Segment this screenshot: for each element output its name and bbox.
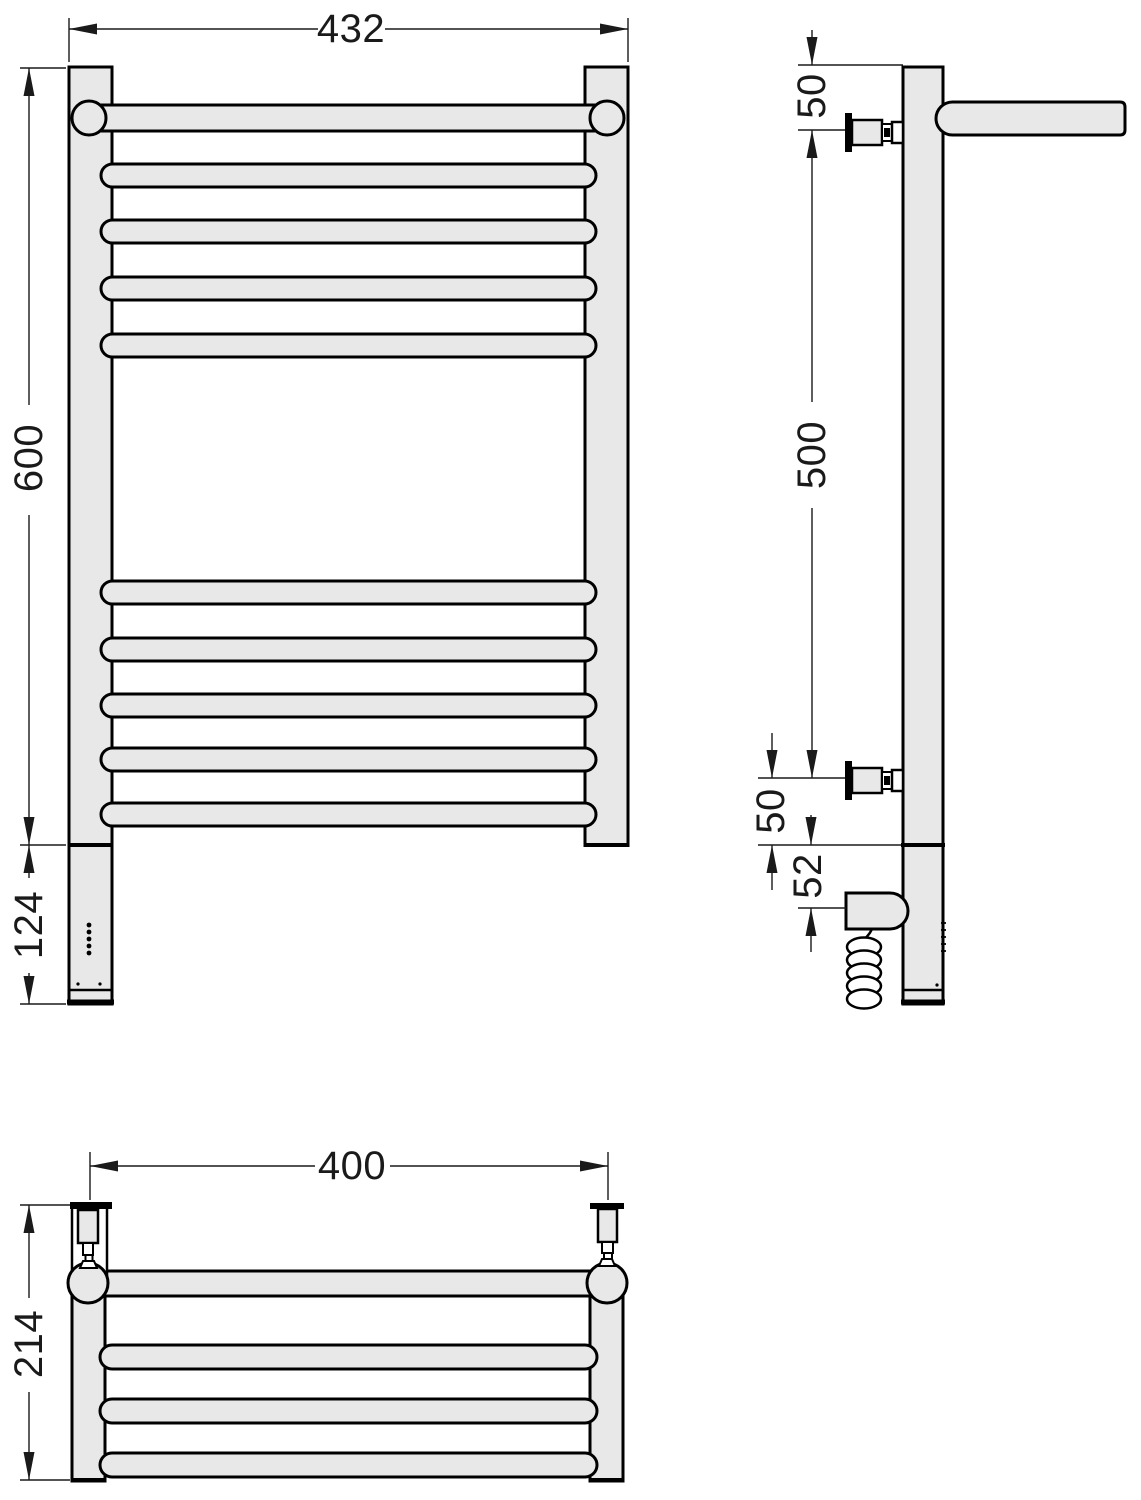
valve-neck bbox=[602, 1242, 613, 1253]
dim-side-bracket-span: 500 bbox=[758, 160, 845, 778]
bracket-body bbox=[852, 120, 882, 145]
dim-heating-element-label: 124 bbox=[7, 891, 51, 959]
coiled-cable bbox=[847, 938, 881, 1009]
rung bbox=[101, 748, 596, 771]
dim-side-bottom-offset-label: 50 bbox=[749, 788, 793, 834]
towel-rail-dimension-drawing: 432 600 124 bbox=[0, 0, 1141, 1500]
valve-body bbox=[598, 1209, 617, 1242]
dim-top-depth-label: 214 bbox=[7, 1310, 51, 1378]
dim-side-top-offset-label: 50 bbox=[790, 73, 834, 119]
shelf-bar bbox=[100, 1399, 597, 1423]
wall-bracket-bottom bbox=[845, 761, 903, 800]
cap-screw bbox=[98, 982, 101, 985]
shelf-bar bbox=[100, 1453, 597, 1477]
dim-side-bracket-span-label: 500 bbox=[790, 421, 834, 489]
rung bbox=[101, 694, 596, 717]
rung bbox=[101, 581, 596, 604]
cap-screw bbox=[935, 983, 938, 986]
side-view: 50 500 50 52 bbox=[749, 30, 1125, 1009]
knob-cap-left bbox=[80, 1261, 97, 1268]
electric-box bbox=[846, 893, 908, 929]
dim-front-width-label: 432 bbox=[317, 7, 385, 51]
wall-flange bbox=[70, 1202, 112, 1209]
shelf-bar bbox=[100, 1345, 597, 1369]
shelf-knob-right bbox=[590, 101, 624, 135]
front-view: 432 600 124 bbox=[7, 7, 630, 1004]
rung bbox=[101, 334, 596, 357]
bracket-nut bbox=[892, 770, 903, 791]
top-mount-right bbox=[590, 1203, 624, 1262]
dim-front-height-label: 600 bbox=[7, 424, 51, 492]
bracket-pin bbox=[884, 776, 890, 785]
top-view: 400 214 bbox=[7, 1144, 627, 1481]
rung bbox=[101, 277, 596, 300]
front-left-post bbox=[69, 67, 112, 1004]
dim-side-element-offset-label: 52 bbox=[786, 853, 830, 899]
bracket-body bbox=[852, 768, 882, 793]
shelf-knob-left bbox=[72, 101, 106, 135]
wall-bracket-top bbox=[845, 113, 903, 152]
valve-neck bbox=[83, 1243, 93, 1255]
rung bbox=[101, 803, 596, 826]
side-post bbox=[903, 67, 943, 1004]
dim-side-element-offset: 52 bbox=[786, 815, 846, 952]
side-shelf-rail bbox=[936, 102, 1125, 135]
valve-body bbox=[78, 1210, 98, 1243]
knob-cap-right bbox=[599, 1259, 615, 1266]
shelf-rail bbox=[89, 105, 607, 131]
dim-top-mount-span: 400 bbox=[90, 1144, 608, 1200]
rung bbox=[101, 638, 596, 661]
bracket-nut bbox=[892, 122, 903, 143]
bracket-pin bbox=[884, 128, 890, 137]
shelf-front-bar bbox=[88, 1271, 607, 1296]
rung bbox=[101, 164, 596, 187]
dim-heating-element: 124 bbox=[7, 845, 66, 1004]
rung bbox=[101, 220, 596, 243]
dim-top-depth: 214 bbox=[7, 1205, 70, 1480]
cap-screw bbox=[76, 982, 79, 985]
top-right-rail bbox=[590, 1283, 623, 1481]
dim-front-width: 432 bbox=[69, 7, 628, 62]
corner-knob-right bbox=[587, 1263, 627, 1303]
technical-drawing: 432 600 124 bbox=[0, 0, 1141, 1500]
top-left-rail bbox=[72, 1283, 105, 1481]
dim-front-height: 600 bbox=[7, 68, 66, 845]
dim-top-mount-span-label: 400 bbox=[318, 1144, 386, 1188]
